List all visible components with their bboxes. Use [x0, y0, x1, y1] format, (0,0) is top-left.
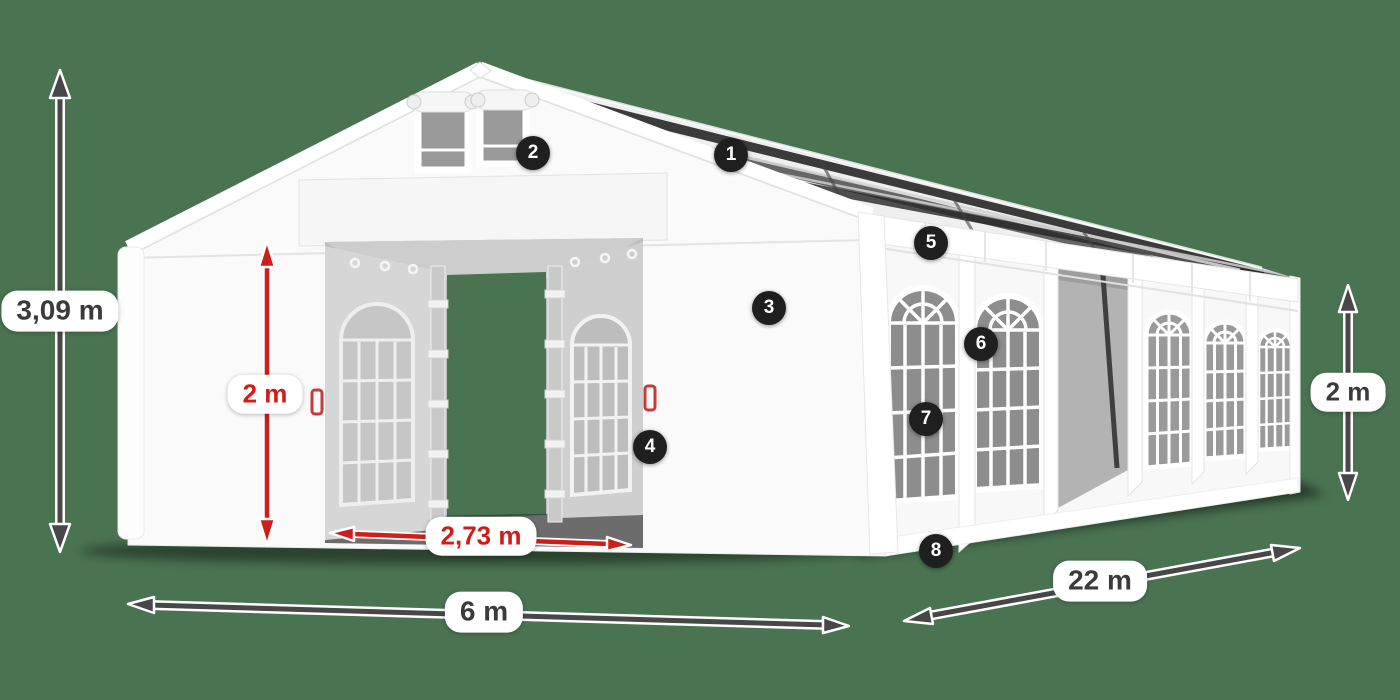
entrance-opening	[325, 238, 643, 548]
side-window	[888, 288, 958, 502]
side-doorway-opening	[1058, 246, 1128, 508]
tent-illustration	[0, 0, 1400, 700]
callout-4: 4	[633, 430, 667, 464]
callout-5: 5	[914, 226, 948, 260]
dimension-label-entrance-height: 2 m	[228, 375, 303, 414]
dimension-label-length: 22 m	[1053, 561, 1147, 602]
gable-vent	[407, 92, 479, 170]
dimension-label-entrance-width: 2,73 m	[426, 517, 537, 556]
entrance-door-left	[325, 246, 448, 540]
entrance-header	[299, 173, 667, 246]
callout-3: 3	[752, 291, 786, 325]
scene: 3,09 m 2 m 2,73 m 6 m 22 m 2 m 1 2 3 4 5…	[0, 0, 1400, 700]
callout-7: 7	[909, 402, 943, 436]
dimension-label-width: 6 m	[445, 592, 523, 633]
entrance-door-right	[545, 242, 643, 522]
front-left-corner-post	[118, 247, 144, 539]
side-window	[1204, 322, 1246, 459]
callout-8: 8	[919, 534, 953, 568]
side-window	[1258, 330, 1292, 450]
callout-1: 1	[714, 138, 748, 172]
side-window	[974, 296, 1042, 490]
callout-6: 6	[964, 327, 998, 361]
side-window	[1146, 312, 1192, 468]
dimension-label-side-height: 2 m	[1311, 373, 1386, 412]
callout-2: 2	[516, 136, 550, 170]
dimension-label-total-height: 3,09 m	[1, 291, 118, 332]
